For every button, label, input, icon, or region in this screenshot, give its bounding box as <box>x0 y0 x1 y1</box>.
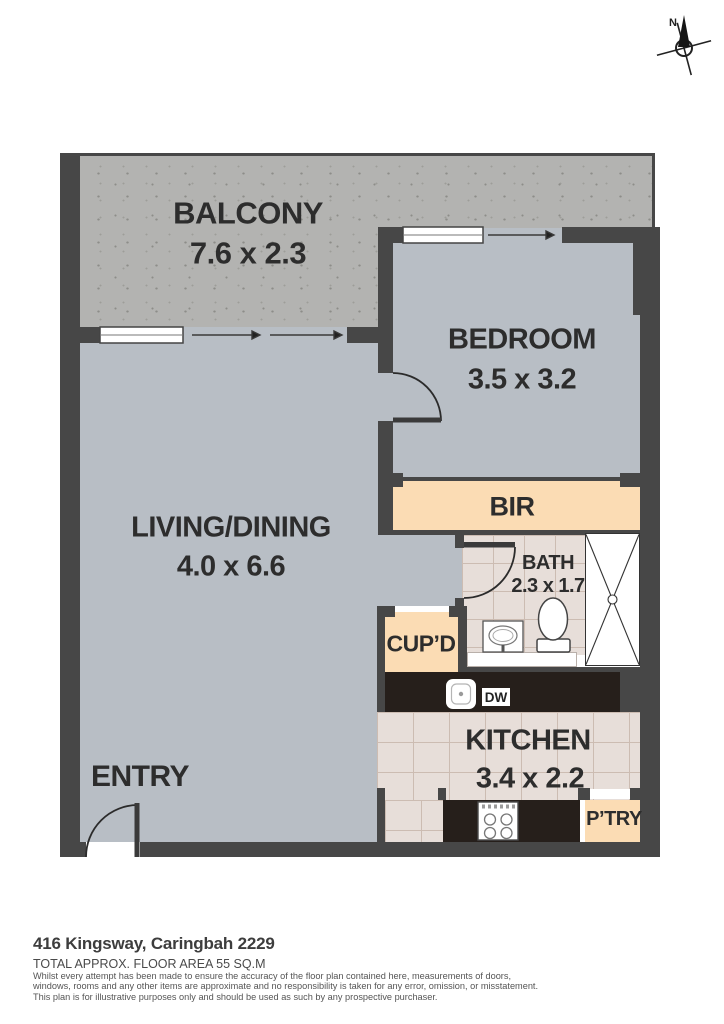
kitchen-label: KITCHEN <box>465 727 590 756</box>
footer-floor-area: TOTAL APPROX. FLOOR AREA 55 SQ.M <box>33 957 265 971</box>
wall-cupboard-right <box>458 606 467 672</box>
bedroom-label: BEDROOM <box>448 326 596 355</box>
wall-bir-cap-left <box>388 473 403 487</box>
wall-segment <box>620 672 640 712</box>
wall-bir-cap-right <box>620 473 640 487</box>
shower-tray <box>585 533 640 666</box>
footer-disclaimer-line3: This plan is for illustrative purposes o… <box>33 992 538 1002</box>
balcony-dims: 7.6 x 2.3 <box>190 238 306 269</box>
balcony-opening-living <box>183 327 347 343</box>
wall-bottom-left <box>60 842 86 857</box>
wall-bath-left-a <box>455 530 464 548</box>
kitchen-floor-lower <box>385 800 443 842</box>
footer-address: 416 Kingsway, Caringbah 2229 <box>33 934 275 954</box>
pantry-label: P’TRY <box>586 809 642 829</box>
vanity-bench <box>467 652 577 667</box>
sliding-door-bedroom <box>403 227 483 243</box>
bath-dims: 2.3 x 1.7 <box>511 576 584 596</box>
wall-pantry-cap-right <box>630 788 640 800</box>
sliding-door-living <box>100 327 183 343</box>
living-dims: 4.0 x 6.6 <box>177 553 285 582</box>
bath-label: BATH <box>522 553 574 573</box>
floor-plan: DW <box>0 0 724 1024</box>
bedroom-door-opening <box>378 373 393 421</box>
wall-bedroom-top-b <box>562 227 660 243</box>
footer-disclaimer-line1: Whilst every attempt has been made to en… <box>33 971 538 981</box>
pantry-opening <box>590 789 630 799</box>
wall-right <box>640 228 660 857</box>
compass-north-label: N <box>669 17 677 29</box>
wall-bir-top <box>403 477 620 481</box>
hall-nook-floor <box>378 535 462 608</box>
balcony-rail-top <box>80 153 653 156</box>
wall-bath-bottom-strip <box>462 667 640 672</box>
bedroom-floor <box>393 243 640 481</box>
bir-label: BIR <box>490 494 535 521</box>
entry-label: ENTRY <box>91 762 189 792</box>
bedroom-dims: 3.5 x 3.2 <box>468 366 576 395</box>
balcony-opening-bedroom <box>483 227 562 243</box>
compass-icon: N <box>650 15 718 82</box>
wall-cupboard-left <box>377 612 385 672</box>
wall-bedroom-left-a <box>378 227 393 373</box>
cupboard-label: CUP’D <box>386 633 455 656</box>
balcony-rail-right <box>652 153 655 231</box>
wall-left <box>60 153 80 857</box>
wall-bottom <box>140 842 660 857</box>
wall-kitchen-stub <box>377 788 385 842</box>
kitchen-bench-stove <box>443 800 580 842</box>
dishwasher-label: DW <box>485 690 508 705</box>
balcony-label: BALCONY <box>173 198 323 229</box>
wall-stove-stub <box>438 788 446 800</box>
wall-kitchen-left <box>377 672 385 712</box>
wall-living-top-a <box>80 327 100 343</box>
dishwasher-label-box: DW <box>482 688 510 706</box>
footer-disclaimer-line2: windows, rooms and any other items are a… <box>33 981 538 991</box>
footer-disclaimer: Whilst every attempt has been made to en… <box>33 971 538 1002</box>
kitchen-dims: 3.4 x 2.2 <box>476 765 584 794</box>
living-label: LIVING/DINING <box>131 514 331 543</box>
